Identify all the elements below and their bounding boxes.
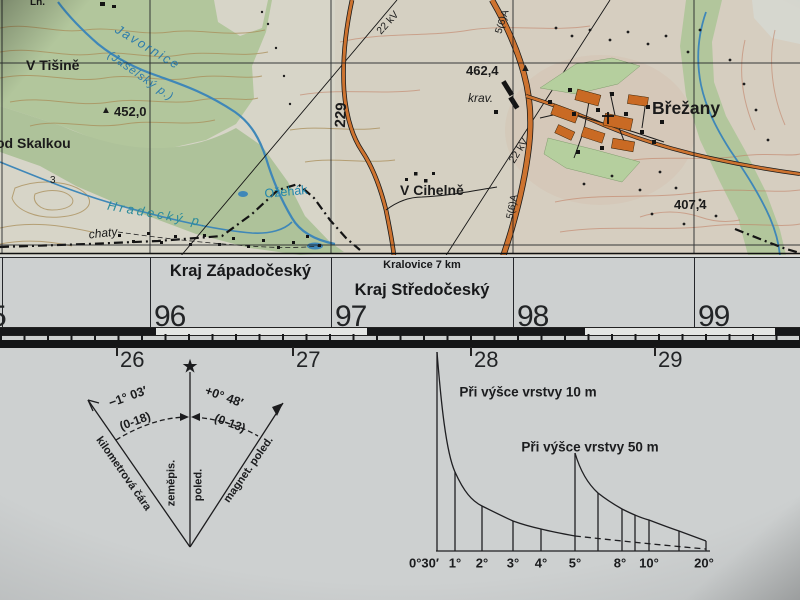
kraj-central-label: Kraj Středočeský [331,281,513,300]
map-sheet: Lh. V Tišině ▲ 452,0 od Skalkou 3 Javorn… [0,0,800,257]
slope-title-50m: Při výšce vrstvy 50 m [521,440,658,454]
label-lh: Lh. [30,0,45,8]
slope-tick-3: 3° [507,557,519,570]
slope-tick-0-30: 0°30′ [409,557,439,570]
slope-tick-2: 2° [476,557,488,570]
kraj-west-label: Kraj Západočeský [150,262,331,281]
label-krav: krav. [468,92,493,104]
map-photo: Lh. V Tišině ▲ 452,0 od Skalkou 3 Javorn… [0,0,800,600]
label-spot-3: 3 [50,176,56,186]
slope-title-10m: Při výšce vrstvy 10 m [459,385,596,399]
label-v-tisine: V Tišině [26,58,79,72]
label-v-cihelne: V Cihelně [400,183,464,197]
trig-point-icon: ▲ [101,106,111,116]
trig-point-icon: ▲ [520,63,531,74]
label-brezany: Břežany [652,100,720,118]
label-pod-skalkou: od Skalkou [0,136,71,150]
slope-tick-4: 4° [535,557,547,570]
kralovice-distance-label: Kralovice 7 km [331,259,513,271]
slope-tick-10: 10° [639,557,659,570]
slope-tick-20: 20° [694,557,714,570]
gridline-98 [513,257,514,327]
label-road-229: 229 [333,102,349,128]
small-pond [238,191,248,197]
geographic-meridian-label-2: poled. [194,469,205,501]
north-star-icon: ★ [181,358,198,377]
label-spot-407: 407,4 [674,198,707,211]
slope-tick-1: 1° [449,557,461,570]
slope-tick-8: 8° [614,557,626,570]
label-spot-452: 452,0 [114,105,147,118]
label-chaty: chaty [88,226,118,241]
gridline-99 [694,257,695,327]
label-spot-462: 462,4 [466,64,499,77]
slope-tick-5: 5° [569,557,581,570]
geographic-meridian-label-1: zeměpis. [167,460,178,506]
